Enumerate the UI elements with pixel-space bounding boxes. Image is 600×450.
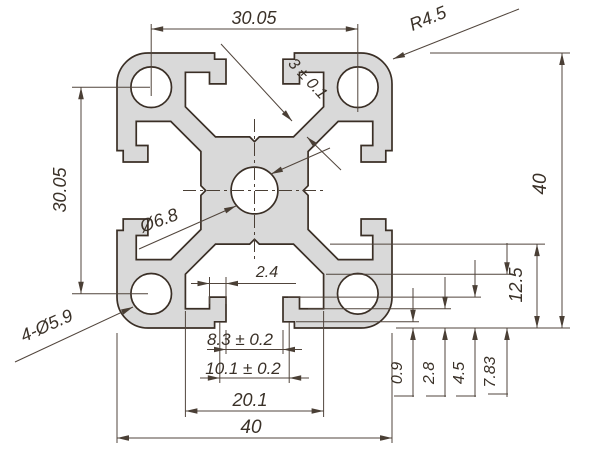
drawing-page: 30.05 30.05 R4.5 3 ± 0.1 40 12.5 Ø6.8 4-… bbox=[0, 0, 600, 450]
dim-top-hole-spacing: 30.05 bbox=[231, 8, 277, 28]
dim-cavity-corner-depth: 7.83 bbox=[482, 356, 499, 387]
dim-hook-depth: 4.5 bbox=[451, 362, 468, 384]
dim-lip-thickness: 2.8 bbox=[421, 362, 438, 385]
dim-overall-width: 40 bbox=[240, 417, 262, 438]
drawing-canvas: 30.05 30.05 R4.5 3 ± 0.1 40 12.5 Ø6.8 4-… bbox=[0, 0, 600, 450]
dim-lip-step-depth: 0.9 bbox=[389, 362, 406, 384]
dim-slot-depth: 12.5 bbox=[506, 267, 526, 303]
dim-hook-width: 2.4 bbox=[255, 264, 278, 281]
dim-slot-throat: 10.1 ± 0.2 bbox=[205, 359, 281, 378]
dim-cavity-width: 20.1 bbox=[231, 390, 267, 410]
dim-slot-opening: 8.3 ± 0.2 bbox=[207, 330, 274, 349]
dim-overall-height: 40 bbox=[530, 173, 551, 195]
dim-center-bore: Ø6.8 bbox=[136, 204, 180, 236]
dim-left-hole-spacing: 30.05 bbox=[50, 166, 70, 212]
corner-hole-bottom-right bbox=[338, 274, 379, 315]
dim-corner-bores: 4-Ø5.9 bbox=[17, 305, 75, 346]
dim-corner-radius: R4.5 bbox=[406, 2, 450, 35]
